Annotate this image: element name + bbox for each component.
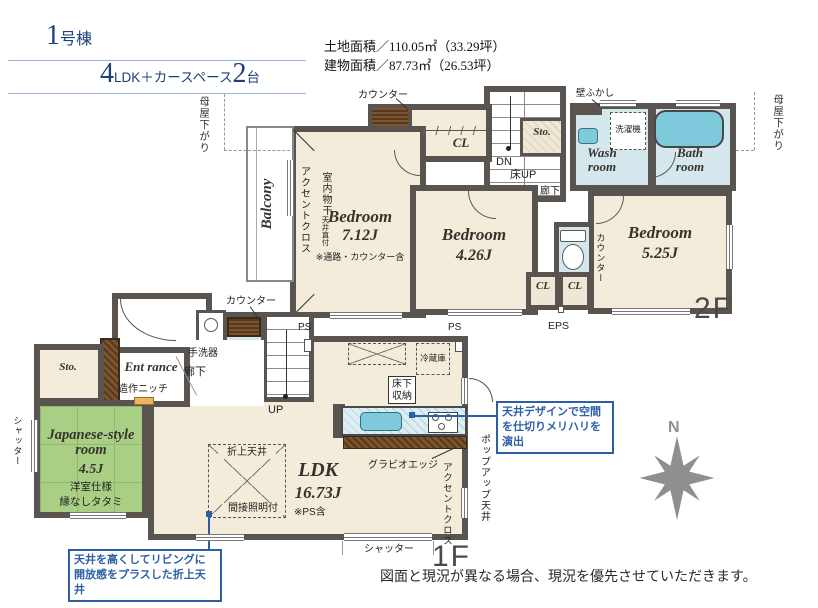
kitchen-callout-line bbox=[415, 415, 496, 417]
closet-top-label: CL bbox=[446, 136, 476, 150]
ps-label-1: PS bbox=[298, 322, 311, 334]
gravio-edge-ledge bbox=[343, 436, 467, 449]
floor-up-label: 床UP bbox=[510, 169, 536, 182]
niche-label: 造作ニッチ bbox=[118, 384, 168, 396]
coffered-ceiling-label: 折上天井 bbox=[218, 447, 276, 459]
bedroom-2-size: 4.26J bbox=[422, 248, 526, 265]
washer-label: 洗濯機 bbox=[612, 125, 644, 135]
floor-2-label: 2F bbox=[694, 292, 733, 326]
stair-route-dot bbox=[506, 146, 511, 151]
side-counter-label: カウンター bbox=[595, 233, 605, 283]
unit-number: 1 bbox=[46, 20, 60, 51]
living-ceiling-callout: 天井を高くしてリビングに開放感をプラスした折上天井 bbox=[68, 549, 222, 602]
japanese-room-note2: 縁なしタタミ bbox=[41, 496, 141, 508]
accent-cross-1f-label: アクセントクロス bbox=[440, 462, 451, 546]
ldk-note: ※PS含 bbox=[294, 507, 326, 519]
moya-sagari-left-label: 母屋下がり bbox=[198, 96, 210, 154]
japanese-room-size: 4.5J bbox=[41, 463, 141, 478]
door-arc bbox=[469, 378, 493, 402]
bathtub bbox=[654, 110, 724, 148]
japanese-room-note1: 洋室仕様 bbox=[41, 481, 141, 493]
window bbox=[726, 225, 733, 269]
shutter-left-label: シャッター bbox=[12, 416, 22, 466]
japanese-room-name: Japanese-style room bbox=[41, 428, 141, 458]
popup-ceiling-label: ポップアップ天井 bbox=[478, 434, 490, 522]
fukashi-wall bbox=[576, 108, 602, 115]
window bbox=[70, 512, 126, 519]
closet-a-label: CL bbox=[531, 281, 555, 293]
underfloor-storage-label: 床下収納 bbox=[390, 379, 414, 402]
hand-basin bbox=[204, 318, 218, 332]
counter-2f-label: カウンター bbox=[358, 90, 408, 102]
hallway-2f-label: 廊下 bbox=[540, 186, 560, 198]
ldk-name: LDK bbox=[286, 460, 350, 481]
closet-rail bbox=[412, 130, 486, 131]
disclaimer-text: 図面と現況が異なる場合、現況を優先させていただきます。 bbox=[380, 568, 757, 584]
header-divider-bottom bbox=[8, 93, 306, 94]
ps-box-2 bbox=[455, 341, 463, 352]
moya-sagari-right-label: 母屋下がり bbox=[772, 94, 784, 152]
counter-1f-label: カウンター bbox=[226, 296, 276, 308]
floor-plan-sheet: 1号棟 4LDK＋カースペース2台 土地面積／110.05㎡（33.29坪） 建… bbox=[0, 0, 818, 608]
niche-block bbox=[134, 397, 154, 405]
compass-north-label: N bbox=[668, 419, 680, 437]
window bbox=[196, 534, 244, 541]
toilet-counter-1f bbox=[227, 317, 261, 337]
window bbox=[330, 312, 402, 319]
bedroom-2-name: Bedroom bbox=[422, 226, 526, 244]
up-label: UP bbox=[268, 404, 283, 417]
window bbox=[448, 309, 522, 316]
layout-rooms: 4 bbox=[100, 58, 114, 89]
moya-sagari-right-line bbox=[754, 92, 755, 150]
entrance-label: Ent rance bbox=[122, 360, 180, 374]
window bbox=[676, 100, 720, 107]
moya-sagari-left-line bbox=[224, 94, 225, 150]
shutter-window bbox=[344, 533, 432, 541]
stair-route-line bbox=[510, 96, 511, 148]
hand-basin-label: 手洗器 bbox=[188, 348, 218, 360]
bedroom-3-size: 5.25J bbox=[606, 246, 714, 263]
shutter-bottom-label: シャッター bbox=[364, 544, 414, 556]
land-area: 土地面積／110.05㎡（33.29坪） bbox=[324, 38, 506, 57]
burner bbox=[438, 423, 445, 430]
ldk-size: 16.73J bbox=[282, 484, 354, 502]
layout-title: 4LDK＋カースペース2台 bbox=[58, 58, 302, 90]
stair-route-line-1f bbox=[286, 330, 287, 396]
storage-1f bbox=[34, 344, 104, 404]
bedroom-1-note: ※通路・カウンター含 bbox=[310, 252, 410, 262]
balcony-label: Balcony bbox=[260, 124, 280, 284]
closet-b-label: CL bbox=[563, 281, 587, 293]
window bbox=[287, 160, 294, 216]
dn-label: DN bbox=[496, 156, 512, 169]
bedroom-1-name: Bedroom bbox=[308, 208, 412, 226]
window bbox=[461, 488, 468, 518]
ps-box-1 bbox=[304, 339, 312, 352]
vanity-sink bbox=[578, 128, 598, 144]
moya-sagari-right-line-h bbox=[736, 150, 754, 151]
bedroom-1-size: 7.12J bbox=[308, 228, 412, 245]
bedroom-3-name: Bedroom bbox=[606, 224, 714, 242]
window bbox=[600, 100, 636, 107]
unit-title: 1号棟 bbox=[46, 20, 92, 52]
gravio-edge-label: グラビオエッジ bbox=[368, 460, 438, 472]
moya-sagari-left-line-h bbox=[224, 150, 290, 151]
wall-fukashi-label: 壁ふかし bbox=[576, 89, 614, 100]
car-count: 2 bbox=[232, 58, 246, 89]
unit-suffix: 号棟 bbox=[60, 31, 92, 48]
toilet-tank-2f bbox=[560, 230, 586, 242]
car-suffix: 台 bbox=[246, 70, 260, 85]
eps-label: EPS bbox=[548, 320, 569, 332]
wash-room-label: Wash room bbox=[578, 146, 626, 173]
upper-cabinet-box bbox=[348, 343, 406, 365]
toilet-bowl-2f bbox=[562, 244, 584, 270]
fridge-label: 冷蔵庫 bbox=[416, 354, 450, 364]
building-area: 建物面積／87.73㎡（26.53坪） bbox=[324, 57, 506, 76]
layout-text: LDK＋カースペース bbox=[114, 70, 232, 85]
eps-box bbox=[558, 306, 564, 313]
stair-route-dot-1f bbox=[283, 394, 288, 399]
compass-rose-icon bbox=[632, 436, 722, 520]
storage-1f-label: Sto. bbox=[40, 362, 96, 374]
door-opening bbox=[461, 378, 468, 404]
ps-label-2: PS bbox=[448, 322, 461, 334]
indirect-light-label: 間接照明付 bbox=[222, 503, 284, 515]
kitchen-ceiling-callout: 天井デザインで空間を仕切りメリハリを演出 bbox=[496, 401, 614, 454]
area-info: 土地面積／110.05㎡（33.29坪） 建物面積／87.73㎡（26.53坪） bbox=[324, 38, 506, 76]
storage-2f-label: Sto. bbox=[526, 127, 558, 139]
window bbox=[612, 308, 690, 315]
kitchen-sink bbox=[360, 412, 402, 431]
window bbox=[31, 420, 38, 472]
